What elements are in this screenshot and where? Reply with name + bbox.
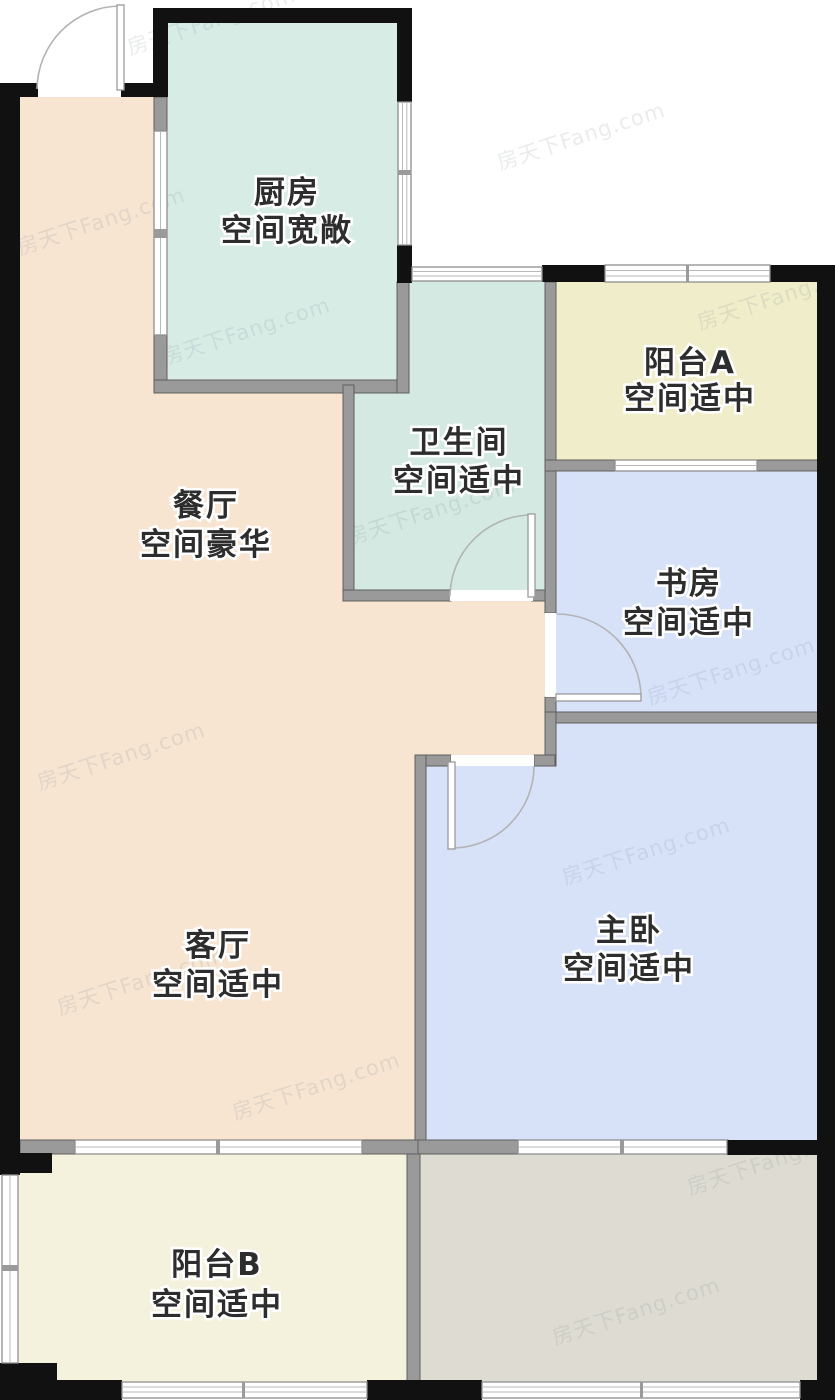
room-name: 厨房 bbox=[254, 175, 320, 211]
room-name: 阳台A bbox=[644, 345, 736, 381]
room-desc: 空间适中 bbox=[624, 381, 756, 417]
watermark: 房天下Fang.com bbox=[494, 98, 668, 175]
study-balcony-window bbox=[615, 460, 757, 471]
wall-segment bbox=[154, 97, 167, 133]
wall-segment bbox=[367, 1380, 482, 1400]
room-name: 书房 bbox=[656, 566, 722, 602]
kitchen-window bbox=[398, 102, 411, 245]
entry-door bbox=[37, 5, 124, 97]
wall-segment bbox=[397, 245, 412, 283]
wall-segment bbox=[343, 590, 451, 601]
wall-segment bbox=[343, 385, 354, 601]
balcony-b-bottom-window bbox=[122, 1382, 367, 1398]
bedroom-utility-window bbox=[518, 1140, 727, 1154]
wall-segment bbox=[770, 265, 817, 282]
floorplan-canvas: 房天下Fang.com 房天下Fang.com 房天下Fang.com 房天下F… bbox=[0, 0, 835, 1400]
passage-window bbox=[412, 267, 542, 281]
room-desc: 空间适中 bbox=[563, 951, 695, 987]
room-desc: 空间适中 bbox=[623, 605, 755, 641]
kitchen-sliding-opening bbox=[154, 131, 167, 335]
room-name: 餐厅 bbox=[173, 488, 239, 524]
wall-segment bbox=[121, 83, 155, 97]
room-name: 主卧 bbox=[596, 913, 662, 949]
balcony-a-window bbox=[605, 265, 770, 282]
living-balcony-window bbox=[75, 1140, 362, 1154]
room-desc: 空间适中 bbox=[151, 1287, 283, 1323]
room-desc: 空间豪华 bbox=[140, 527, 272, 563]
room-desc: 空间宽敞 bbox=[221, 213, 353, 249]
room-name: 客厅 bbox=[185, 928, 251, 964]
wall-segment bbox=[397, 8, 412, 102]
wall-segment bbox=[800, 1380, 835, 1400]
wall-segment bbox=[153, 8, 412, 23]
wall-segment bbox=[545, 282, 556, 613]
room-utility bbox=[413, 1150, 820, 1385]
balcony-b-left-window bbox=[2, 1175, 18, 1363]
room-desc: 空间适中 bbox=[152, 967, 284, 1003]
wall-segment bbox=[154, 380, 408, 393]
floorplan-page: 房天下Fang.com 房天下Fang.com 房天下Fang.com 房天下F… bbox=[0, 0, 835, 1400]
wall-segment bbox=[545, 697, 556, 713]
wall-segment bbox=[542, 265, 605, 282]
wall-segment bbox=[20, 1153, 52, 1173]
wall-segment bbox=[727, 1140, 817, 1155]
room-name: 卫生间 bbox=[410, 425, 509, 461]
wall-segment bbox=[817, 265, 835, 1400]
wall-segment bbox=[534, 755, 555, 766]
wall-segment bbox=[0, 83, 20, 1175]
wall-segment bbox=[20, 83, 38, 97]
wall-segment bbox=[545, 712, 819, 723]
utility-bottom-window bbox=[482, 1382, 800, 1398]
room-desc: 空间适中 bbox=[393, 463, 525, 499]
wall-segment bbox=[397, 282, 409, 393]
wall-segment bbox=[55, 1380, 122, 1400]
wall-segment bbox=[415, 755, 426, 1154]
wall-segment bbox=[407, 1154, 420, 1385]
room-name: 阳台B bbox=[171, 1247, 263, 1283]
wall-segment bbox=[0, 1363, 57, 1400]
